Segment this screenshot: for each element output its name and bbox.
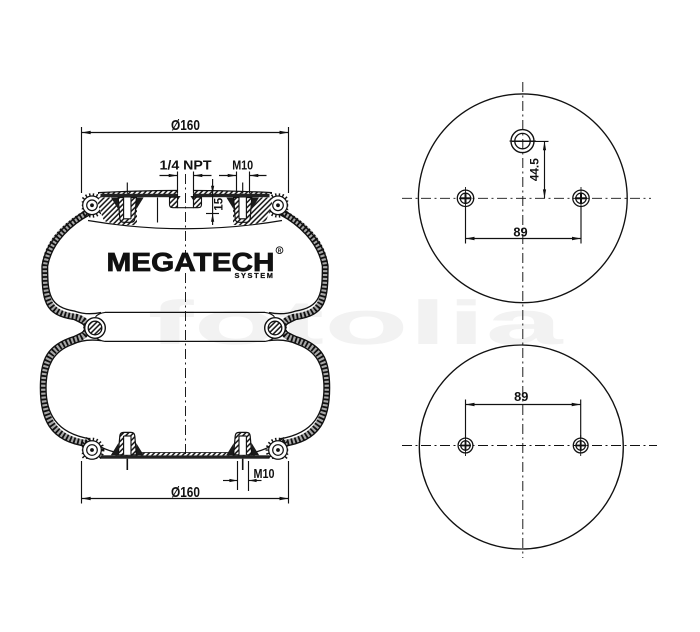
svg-text:SYSTEM: SYSTEM xyxy=(235,271,275,280)
svg-text:M10: M10 xyxy=(254,467,275,481)
svg-text:M10: M10 xyxy=(232,159,253,173)
svg-text:Ø160: Ø160 xyxy=(171,117,200,134)
svg-text:R: R xyxy=(278,248,282,254)
svg-text:44.5: 44.5 xyxy=(528,158,542,181)
svg-text:89: 89 xyxy=(514,389,528,404)
svg-text:15: 15 xyxy=(214,197,226,210)
svg-text:1/4 NPT: 1/4 NPT xyxy=(160,159,212,173)
svg-text:Ø160: Ø160 xyxy=(171,484,200,501)
svg-text:89: 89 xyxy=(513,225,527,240)
